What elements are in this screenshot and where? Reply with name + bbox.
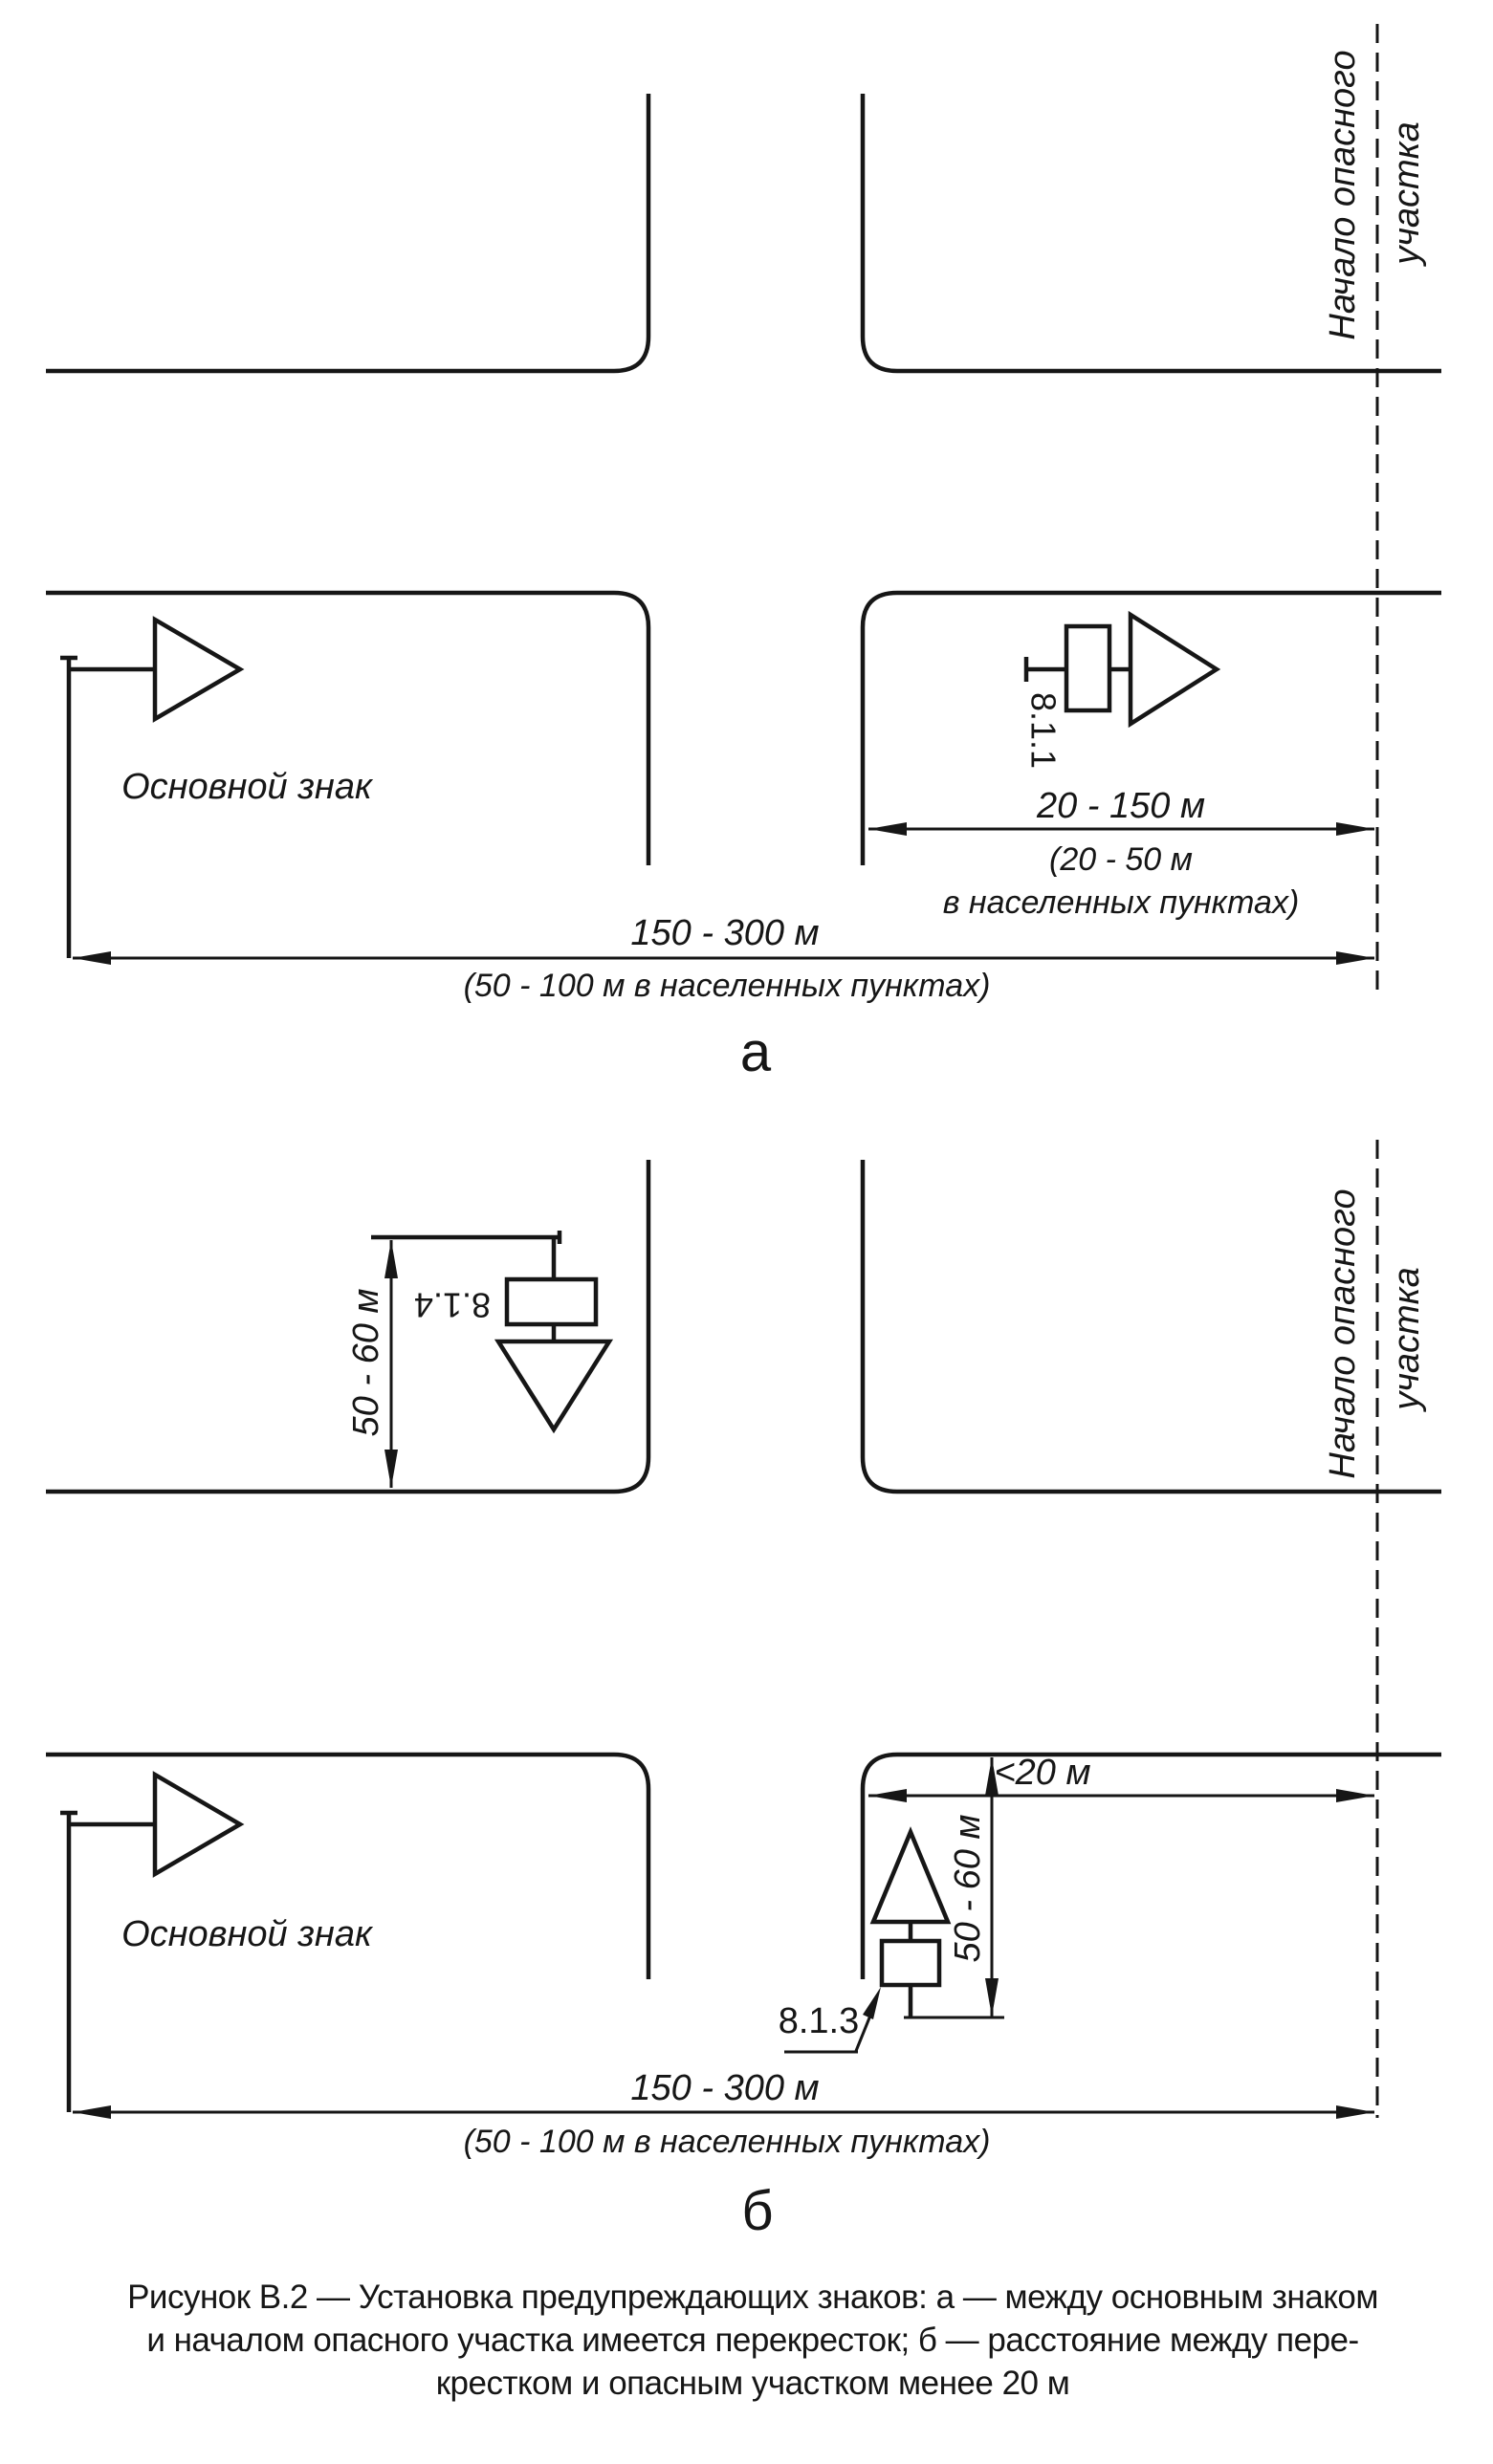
- caption-line2: и началом опасного участка имеется перек…: [146, 2322, 1358, 2359]
- warning-triangle-up-icon: [873, 1832, 948, 1922]
- hazard-start-label-line2: участка: [1387, 1267, 1427, 1413]
- main-sign-label: Основной знак: [121, 767, 374, 807]
- arrow-right-icon: [1336, 951, 1374, 965]
- road-edge-top-left: [46, 94, 648, 371]
- arrow-right-icon: [1336, 2105, 1374, 2119]
- plate-number-label: 8.1.3: [779, 2001, 860, 2041]
- dimension-height-top: 50 - 60 м: [346, 1240, 398, 1488]
- hazard-start-label-line1: Начало опасного: [1323, 1188, 1363, 1478]
- main-sign: Основной знак: [60, 1775, 374, 2112]
- caption-line1: Рисунок В.2 — Установка предупреждающих …: [127, 2279, 1378, 2316]
- figure-b2-drawing: Начало опасного участка Основной знак 8.…: [0, 0, 1493, 2464]
- dimension-value: 50 - 60 м: [948, 1815, 988, 1963]
- warning-triangle-down-icon: [498, 1341, 609, 1429]
- hazard-start-label-line1: Начало опасного: [1323, 50, 1363, 339]
- dimension-note: (50 - 100 м в населенных пунктах): [464, 2124, 991, 2160]
- main-sign: Основной знак: [60, 620, 374, 958]
- dimension-note: (50 - 100 м в населенных пунктах): [464, 968, 991, 1004]
- plate-8-1-3-icon: [882, 1941, 939, 1985]
- hazard-start-label-line2: участка: [1387, 121, 1427, 268]
- sign-8-1-4-assembly: 8.1.4: [371, 1231, 609, 1429]
- dimension-note-line2: в населенных пунктах): [943, 884, 1300, 921]
- sign-8-1-1-assembly: 8.1.1: [1024, 615, 1218, 769]
- dimension-offset: 20 - 150 м (20 - 50 м в населенных пункт…: [868, 786, 1374, 921]
- arrow-right-icon: [1336, 1789, 1374, 1802]
- arrow-down-icon: [384, 1450, 398, 1488]
- road-edge-bottom-left: [46, 593, 648, 865]
- arrow-left-icon: [868, 1789, 907, 1802]
- diagram-b: Начало опасного участка 8.1.4 50 - 60 м: [46, 1140, 1441, 2242]
- dimension-total: 150 - 300 м (50 - 100 м в населенных пун…: [73, 2068, 1374, 2160]
- dimension-total: 150 - 300 м (50 - 100 м в населенных пун…: [73, 913, 1374, 1004]
- dimension-value: 150 - 300 м: [630, 2068, 819, 2108]
- figure-caption: Рисунок В.2 — Установка предупреждающих …: [127, 2279, 1378, 2402]
- arrow-down-icon: [985, 1978, 999, 2017]
- plate-8-1-1-icon: [1066, 626, 1109, 710]
- dimension-gap: <20 м: [868, 1753, 1374, 1802]
- document-page: Начало опасного участка Основной знак 8.…: [0, 0, 1493, 2464]
- warning-triangle-icon: [155, 1775, 240, 1874]
- warning-triangle-icon: [155, 620, 240, 719]
- plate-8-1-4-icon: [507, 1279, 596, 1324]
- arrow-left-icon: [73, 951, 111, 965]
- arrow-up-icon: [384, 1240, 398, 1278]
- dimension-value: 20 - 150 м: [1036, 786, 1205, 826]
- plate-number-label: 8.1.4: [414, 1286, 491, 1325]
- dimension-value: 150 - 300 м: [630, 913, 819, 953]
- dimension-note-line1: (20 - 50 м: [1049, 841, 1193, 878]
- plate-number-label: 8.1.1: [1024, 692, 1064, 769]
- arrow-left-icon: [868, 822, 907, 836]
- dimension-value: 50 - 60 м: [346, 1289, 386, 1437]
- diagram-a: Начало опасного участка Основной знак 8.…: [46, 24, 1441, 1083]
- warning-triangle-icon: [1131, 615, 1217, 724]
- diagram-a-letter: а: [740, 1021, 772, 1083]
- caption-line3: крестком и опасным участком менее 20 м: [436, 2365, 1070, 2402]
- arrow-left-icon: [73, 2105, 111, 2119]
- diagram-b-letter: б: [741, 2180, 773, 2242]
- arrow-right-icon: [1336, 822, 1374, 836]
- main-sign-label: Основной знак: [121, 1914, 374, 1954]
- leader-arrow-icon: [863, 1987, 881, 2019]
- dimension-value: <20 м: [994, 1753, 1090, 1793]
